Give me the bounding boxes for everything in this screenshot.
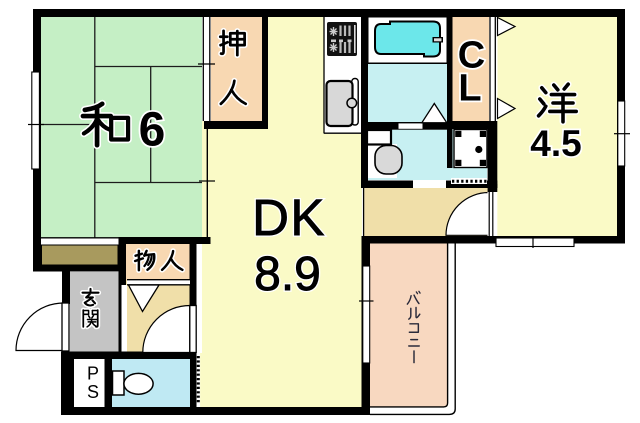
svg-text:4.5: 4.5 — [530, 123, 581, 164]
svg-text:P: P — [87, 364, 99, 384]
svg-text:6: 6 — [139, 104, 166, 157]
svg-text:S: S — [87, 382, 99, 402]
svg-text:L: L — [458, 68, 481, 110]
svg-text:8.9: 8.9 — [254, 248, 321, 301]
svg-text:DK: DK — [252, 189, 326, 246]
